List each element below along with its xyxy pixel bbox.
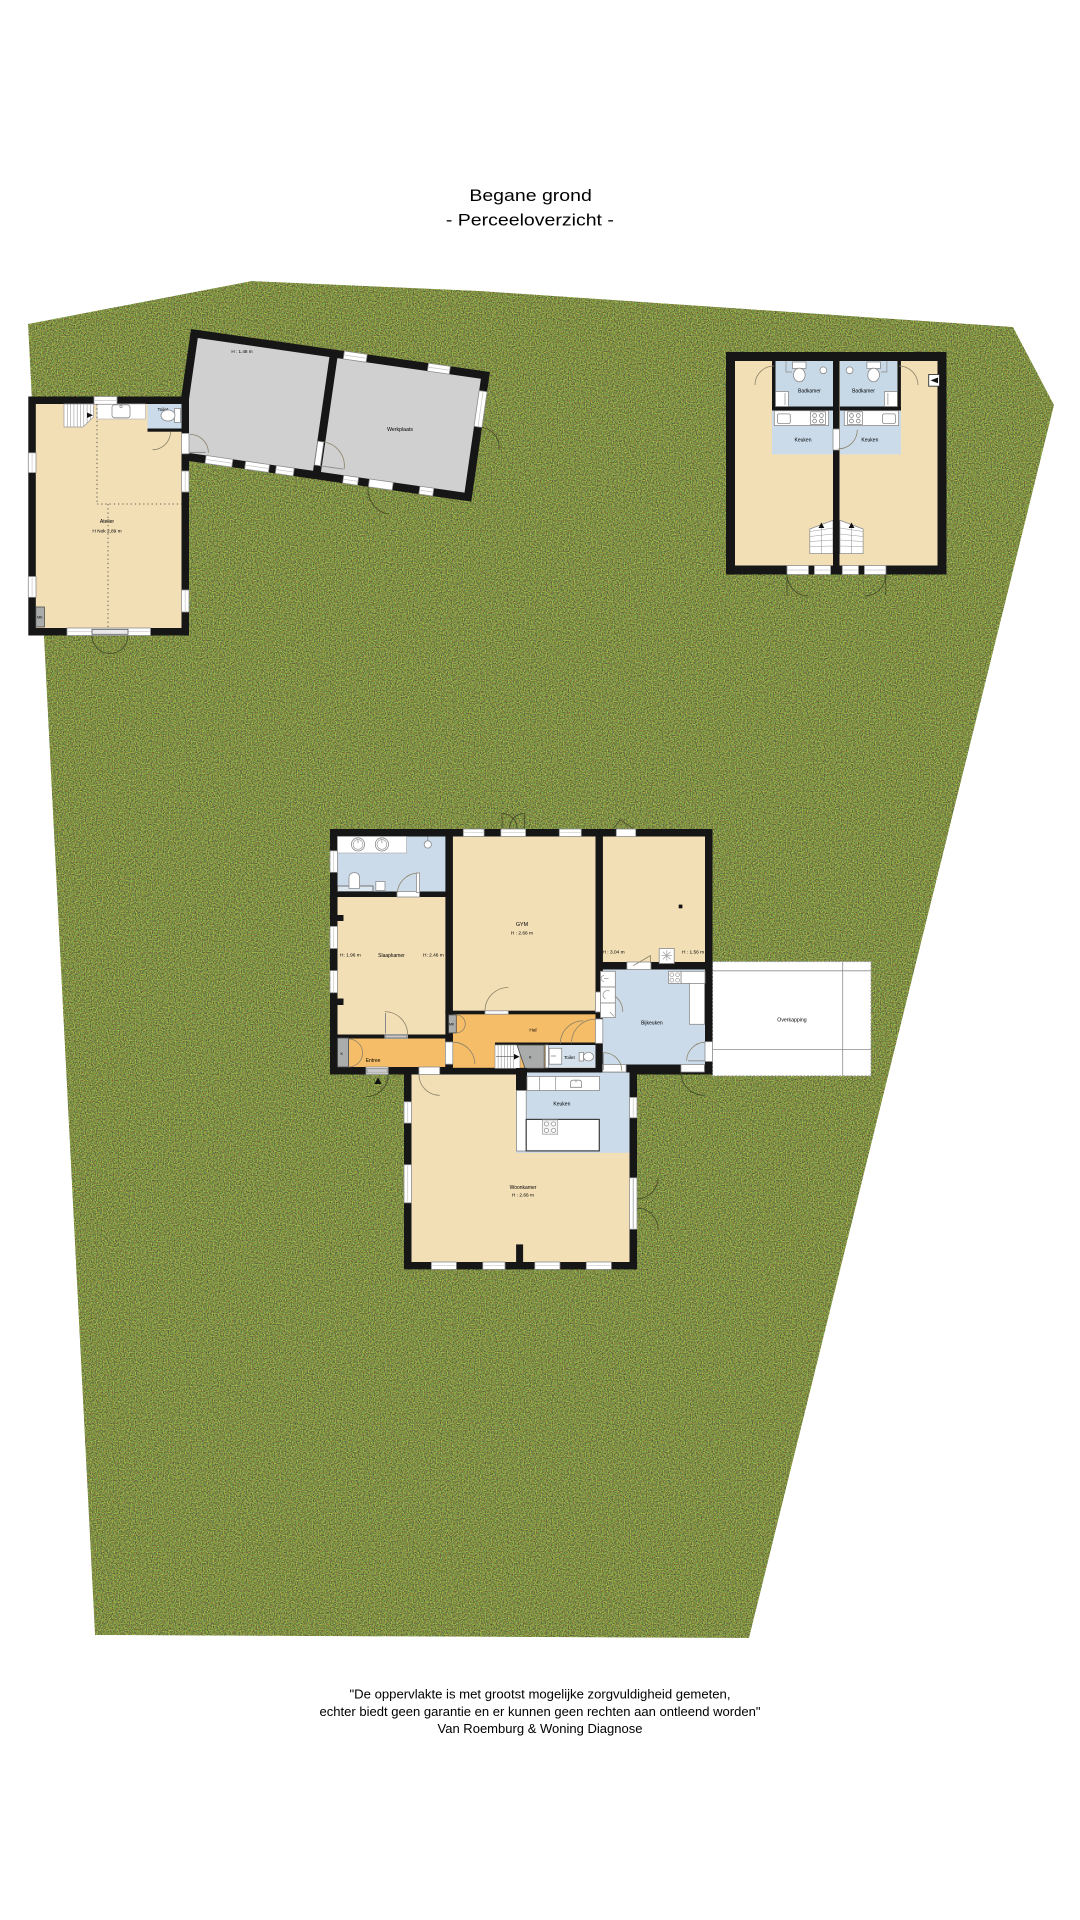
svg-text:Atelier: Atelier	[100, 519, 115, 525]
svg-text:"De oppervlakte is met grootst: "De oppervlakte is met grootst mogelijke…	[350, 1687, 731, 1702]
svg-text:Keuken: Keuken	[861, 437, 878, 443]
svg-text:Hal: Hal	[529, 1028, 536, 1034]
svg-text:MK: MK	[449, 1023, 455, 1027]
svg-text:Werkplaats: Werkplaats	[387, 427, 413, 433]
svg-text:Keuken: Keuken	[795, 437, 812, 443]
svg-text:Slaapkamer: Slaapkamer	[378, 953, 405, 959]
svg-text:Entree: Entree	[366, 1058, 381, 1064]
svg-text:H : 2.66 m: H : 2.66 m	[512, 1192, 534, 1198]
svg-text:H: 1.96 m: H: 1.96 m	[340, 953, 361, 959]
svg-text:H: 2.46 m: H: 2.46 m	[423, 953, 444, 959]
svg-text:MK: MK	[37, 616, 43, 620]
svg-text:echter biedt geen garantie en: echter biedt geen garantie en er kunnen …	[320, 1704, 761, 1719]
svg-text:GYM: GYM	[516, 922, 529, 928]
svg-text:Toilet: Toilet	[564, 1055, 575, 1060]
svg-text:Keuken: Keuken	[553, 1102, 570, 1108]
svg-text:H : 3.04 m: H : 3.04 m	[603, 950, 625, 956]
svg-text:Badkamer: Badkamer	[798, 388, 821, 394]
svg-text:- Perceeloverzicht -: - Perceeloverzicht -	[446, 212, 614, 230]
svg-text:Begane grond: Begane grond	[469, 187, 592, 205]
svg-text:Badkamer: Badkamer	[852, 388, 875, 394]
svg-text:H Nok 2,89 m: H Nok 2,89 m	[92, 529, 121, 535]
svg-text:Bijkeuken: Bijkeuken	[641, 1021, 663, 1027]
svg-text:Woonkamer: Woonkamer	[510, 1185, 537, 1191]
svg-text:Overkapping: Overkapping	[777, 1018, 807, 1024]
svg-text:H : 2.66 m: H : 2.66 m	[511, 931, 533, 937]
svg-text:H : 1.48 m: H : 1.48 m	[231, 349, 252, 354]
svg-text:Van Roemburg & Woning Diagnose: Van Roemburg & Woning Diagnose	[438, 1721, 643, 1736]
svg-text:H : 1.56 m: H : 1.56 m	[682, 950, 704, 956]
